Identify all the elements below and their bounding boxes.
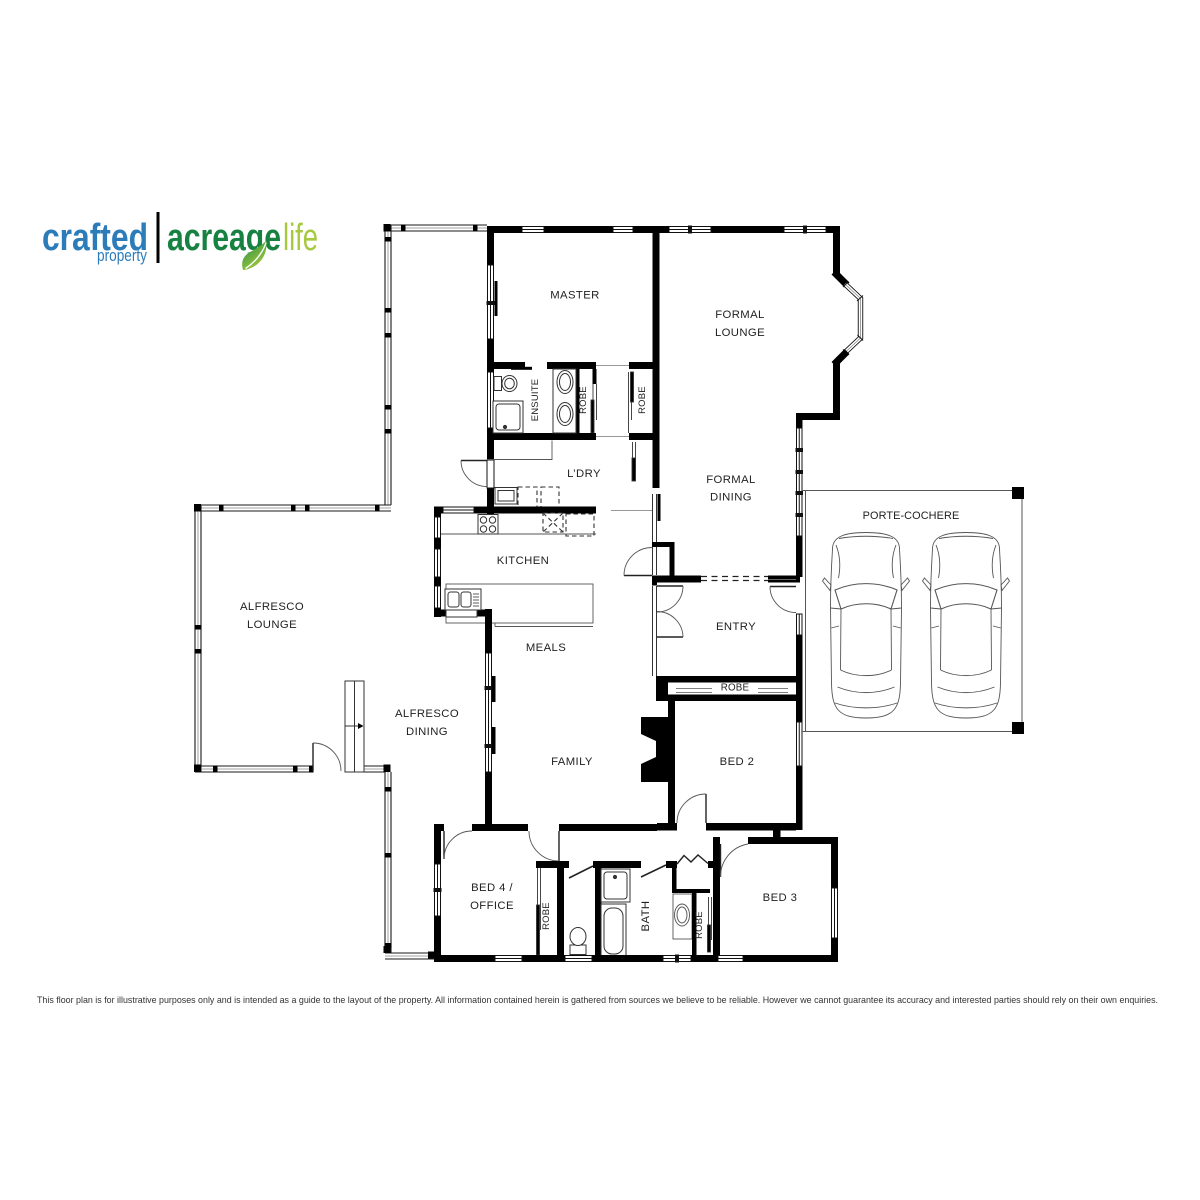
svg-text:This floor plan is for illustr: This floor plan is for illustrative purp… (37, 995, 1158, 1005)
svg-text:LOUNGE: LOUNGE (715, 327, 765, 339)
svg-text:LOUNGE: LOUNGE (247, 619, 297, 631)
svg-text:life: life (283, 217, 318, 259)
svg-text:FORMAL: FORMAL (706, 474, 755, 486)
svg-text:BED 3: BED 3 (763, 892, 798, 904)
svg-text:MASTER: MASTER (550, 290, 599, 302)
svg-text:BATH: BATH (640, 901, 652, 932)
svg-text:BED 2: BED 2 (720, 756, 755, 768)
svg-text:FAMILY: FAMILY (551, 756, 593, 768)
svg-text:ENSUITE: ENSUITE (530, 379, 541, 422)
svg-text:MEALS: MEALS (526, 642, 566, 654)
svg-text:PORTE-COCHERE: PORTE-COCHERE (863, 510, 960, 522)
svg-text:ROBE: ROBE (578, 386, 589, 414)
svg-text:ROBE: ROBE (694, 911, 705, 939)
svg-text:OFFICE: OFFICE (470, 900, 514, 912)
svg-text:ROBE: ROBE (637, 386, 648, 414)
svg-text:FORMAL: FORMAL (715, 309, 764, 321)
svg-text:DINING: DINING (710, 492, 752, 504)
svg-text:BED 4 /: BED 4 / (471, 882, 513, 894)
svg-text:property: property (97, 247, 148, 265)
svg-text:ROBE: ROBE (721, 683, 750, 694)
svg-text:L’DRY: L’DRY (567, 468, 601, 480)
svg-text:DINING: DINING (406, 726, 448, 738)
svg-text:ALFRESCO: ALFRESCO (240, 601, 304, 613)
svg-text:ALFRESCO: ALFRESCO (395, 708, 459, 720)
svg-text:ROBE: ROBE (541, 902, 552, 930)
svg-text:KITCHEN: KITCHEN (497, 555, 549, 567)
svg-text:ENTRY: ENTRY (716, 621, 756, 633)
